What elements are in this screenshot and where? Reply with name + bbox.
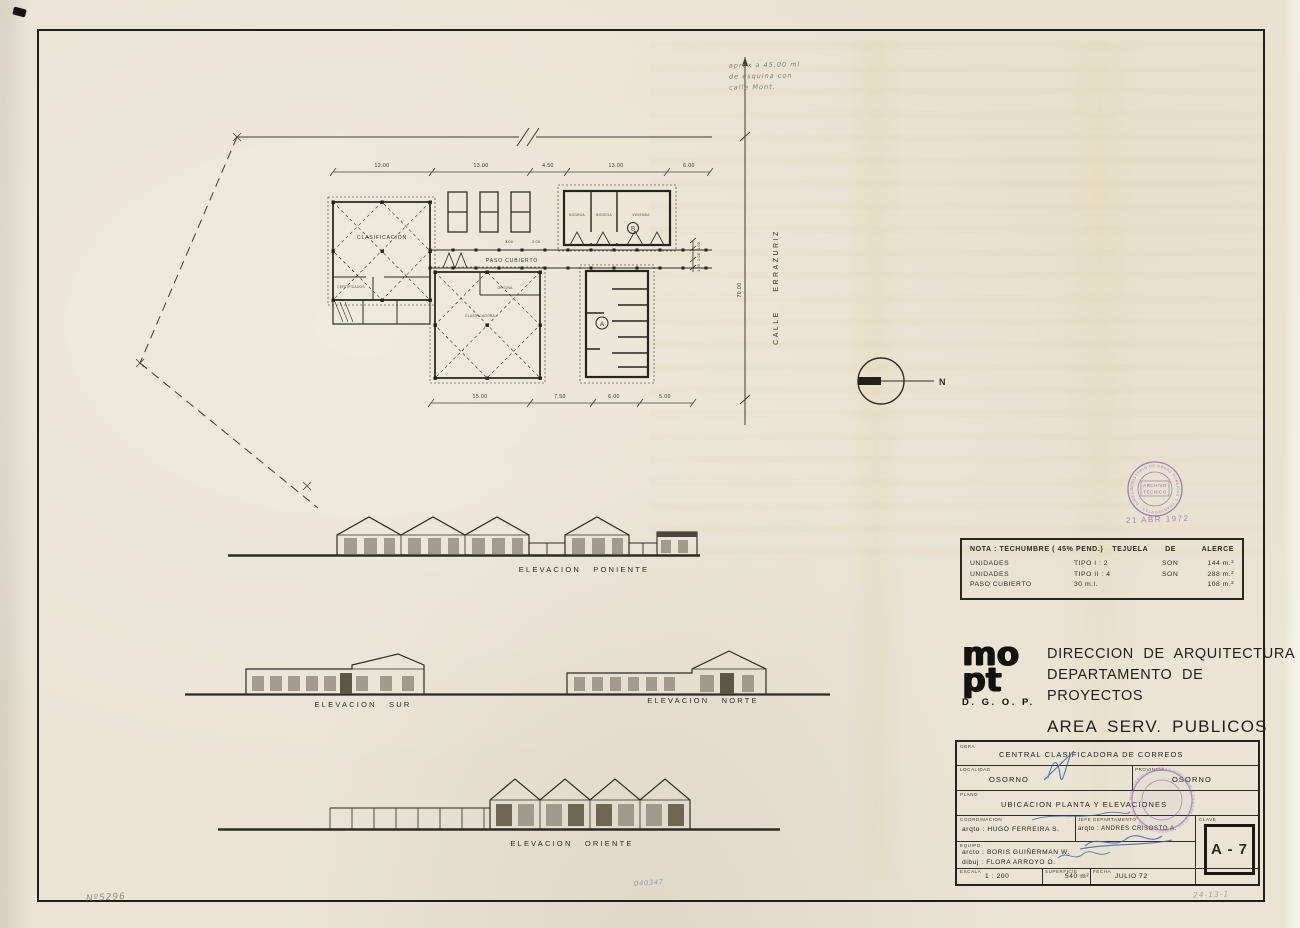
coordinacion-value: arqto : HUGO FERREIRA S. [962, 826, 1060, 833]
elevation-norte [545, 651, 830, 695]
nota-head-c4: ALERCE [1202, 546, 1234, 553]
room-label-b2: BODEGA [596, 213, 612, 217]
nota-cell: SON [1162, 560, 1202, 567]
provincia-value: OSORNO [1172, 775, 1212, 784]
unit-a-label: A [600, 321, 605, 328]
plan-block-clasificadora [430, 267, 545, 383]
equipo-line1: arcto : BORIS GUIÑERMAN W. [962, 849, 1070, 856]
pencil-note-bottom-right: 24-13-1 [1193, 889, 1230, 899]
nota-cell: 144 m.² [1202, 560, 1234, 567]
plano-label: PLANO [960, 792, 978, 797]
dim-top-4: 13.00 [609, 163, 624, 169]
mopt-logo: mo pt D. G. O. P. [962, 641, 1048, 708]
nota-row: UNIDADES TIPO II : 4 SON 288 m.² [970, 571, 1234, 578]
escala-label: ESCALA [960, 869, 981, 874]
room-label-b1: BODEGA [569, 213, 585, 217]
dgop-label: D. G. O. P. [962, 697, 1048, 708]
pencil-note-bottom-left: Nº5296 [86, 892, 126, 904]
plan-paso-cubierto [429, 249, 713, 270]
dim-chain-bottom [428, 399, 696, 407]
dim-small-1: 3.00 [505, 240, 513, 244]
nota-cell: TIPO I : 2 [1074, 560, 1162, 567]
site-boundary [136, 128, 712, 508]
fecha-label: FECHA [1093, 869, 1111, 874]
obra-label: OBRA [960, 744, 975, 749]
equipo-label: EQUIPO [960, 843, 981, 848]
superficie-value: 540 m² [1065, 873, 1089, 880]
nota-row: UNIDADES TIPO I : 2 SON 144 m.² [970, 560, 1234, 567]
dim-chain-top [330, 168, 713, 176]
elevation-poniente [228, 517, 700, 556]
room-label-clasificacion: CLASIFICACION [357, 235, 407, 241]
plano-value: UBICACION PLANTA Y ELEVACIONES [1001, 800, 1167, 809]
nota-cell: TIPO II : 4 [1074, 571, 1162, 578]
elevation-label-norte: ELEVACION NORTE [647, 696, 759, 705]
clave-value: A - 7 [1211, 841, 1248, 858]
north-arrow [858, 358, 934, 404]
jefe-label: JEFE DEPARTAMENTO [1078, 817, 1136, 822]
dim-bot-2: 7.50 [554, 394, 566, 400]
title-block: OBRA CENTRAL CLASIFICADORA DE CORREOS LO… [955, 740, 1260, 886]
dim-small-5: 1.00 [697, 264, 701, 272]
dim-bot-4: 5.00 [659, 394, 671, 400]
site-handwritten-note: aprox a 45.00 ml de esquina con calle Mo… [729, 59, 801, 93]
nota-cell: 108 m.² [1202, 581, 1234, 588]
agency-line1: DIRECCION DE ARQUITECTURA [1047, 644, 1300, 665]
escala-value: 1 : 200 [985, 873, 1009, 880]
dim-top-3: 4.50 [542, 163, 554, 169]
provincia-label: PROVINCIA [1135, 767, 1165, 772]
north-label: N [939, 377, 946, 387]
nota-cell: PASO CUBIERTO [970, 581, 1074, 588]
unit-b-label: B [631, 227, 635, 233]
nota-cell: 288 m.² [1202, 571, 1234, 578]
plan-block-clasificacion [328, 197, 435, 324]
fecha-value: JULIO 72 [1115, 873, 1148, 880]
clave-box: A - 7 [1204, 824, 1255, 875]
dim-top-1: 12.00 [375, 163, 390, 169]
clave-label: CLAVE [1199, 817, 1216, 822]
obra-value: CENTRAL CLASIFICADORA DE CORREOS [999, 750, 1184, 759]
nota-header: NOTA : TECHUMBRE ( 45% PEND.) TEJUELA DE… [970, 546, 1234, 553]
plan-block-b [558, 185, 696, 272]
dim-top-2: 13.00 [474, 163, 489, 169]
agency-line2: DEPARTAMENTO DE PROYECTOS [1047, 665, 1300, 707]
localidad-label: LOCALIDAD [960, 767, 991, 772]
coordinacion-label: COORDINACION [960, 817, 1002, 822]
dim-small-4: 2.00 [697, 253, 701, 261]
elevation-label-oriente: ELEVACION ORIENTE [510, 839, 633, 848]
nota-head-c3: DE [1165, 546, 1202, 553]
nota-row: PASO CUBIERTO 30 m.l. 108 m.² [970, 581, 1234, 588]
agency-text: DIRECCION DE ARQUITECTURA DEPARTAMENTO D… [1047, 644, 1300, 737]
nota-cell: UNIDADES [970, 571, 1074, 578]
plan-skylights [448, 192, 530, 232]
room-label-certificados: CERTIFICADOS [337, 285, 365, 289]
nota-head-c2: TEJUELA [1112, 546, 1165, 553]
nota-cell [1162, 581, 1202, 588]
elevation-label-poniente: ELEVACION PONIENTE [519, 565, 649, 574]
dim-bot-1: 15.00 [473, 394, 488, 400]
dim-small-2: 2.00 [532, 240, 540, 244]
room-label-paso-cubierto: PASO CUBIERTO [486, 258, 538, 264]
street-name-label: CALLE ERRAZURIZ [773, 229, 780, 345]
nota-table: NOTA : TECHUMBRE ( 45% PEND.) TEJUELA DE… [960, 538, 1244, 600]
plan-block-a [580, 265, 654, 383]
elevation-sur [185, 654, 545, 695]
dim-small-3: 1.00 [697, 242, 701, 250]
drawing-sheet: 70.00 CALLE ERRAZURIZ 12.00 13.00 4.50 1… [0, 0, 1300, 928]
nota-cell: 30 m.l. [1074, 581, 1162, 588]
dim-bot-3: 6.00 [608, 394, 620, 400]
street-reference [740, 57, 750, 425]
dim-right-70: 70.00 [737, 283, 743, 298]
elevation-label-sur: ELEVACION SUR [315, 700, 412, 709]
localidad-value: OSORNO [989, 775, 1029, 784]
room-label-oficina: OFICINA [497, 286, 513, 290]
elevation-oriente [218, 779, 780, 830]
room-label-b3: VIVIENDA [632, 213, 650, 217]
agency-line3: AREA SERV. PUBLICOS [1047, 717, 1300, 737]
nota-cell: SON [1162, 571, 1202, 578]
equipo-line2: dibuj : FLORA ARROYO O. [962, 859, 1056, 866]
nota-head-c1: NOTA : TECHUMBRE ( 45% PEND.) [970, 546, 1112, 553]
room-label-clasificadora: CLASIFICADORA [465, 314, 495, 318]
jefe-value: arqto : ANDRES CRISOSTO A. [1078, 826, 1177, 832]
dim-top-5: 6.00 [683, 163, 695, 169]
nota-cell: UNIDADES [970, 560, 1074, 567]
